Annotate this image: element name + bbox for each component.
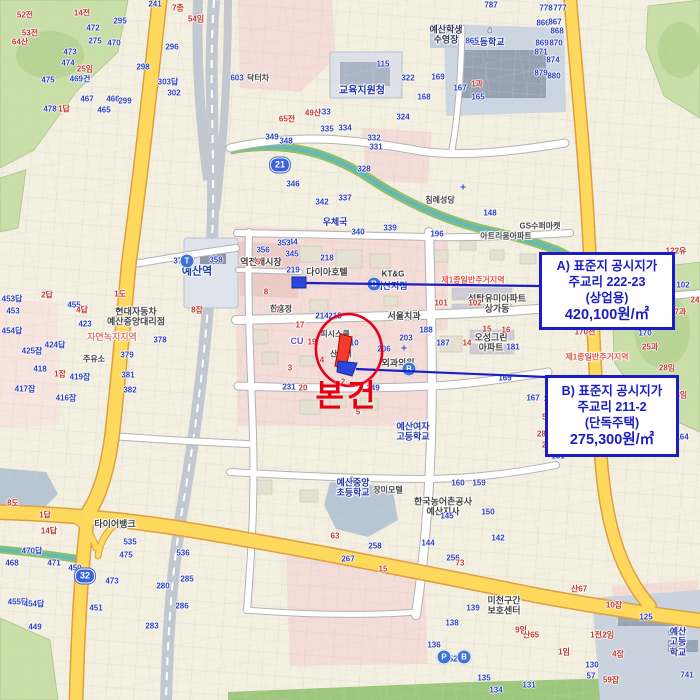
callout-b-price: 275,300원/㎡ [548, 431, 676, 450]
callout-a-title: A) 표준지 공시지가 [542, 258, 672, 274]
map-viewport[interactable]: 예산학생 수영장초등학교교육지원청닥터차우체국침례성당GS수퍼마켓아트리움아파트… [0, 0, 700, 700]
callout-b-title: B) 표준지 공시지가 [548, 383, 676, 399]
subject-label: 본건 [315, 371, 378, 416]
callout-a-standard-land-price: A) 표준지 공시지가 주교리 222-23 (상업용) 420,100원/㎡ [539, 252, 675, 330]
callout-b-use: (단독주택) [548, 415, 676, 431]
callout-a-price: 420,100원/㎡ [542, 306, 672, 325]
map-base-svg [0, 0, 700, 700]
callout-a-parcel: 주교리 222-23 [542, 274, 672, 290]
callout-b-parcel: 주교리 211-2 [548, 399, 676, 415]
callout-a-use: (상업용) [542, 290, 672, 306]
callout-b-standard-land-price: B) 표준지 공시지가 주교리 211-2 (단독주택) 275,300원/㎡ [545, 375, 679, 457]
